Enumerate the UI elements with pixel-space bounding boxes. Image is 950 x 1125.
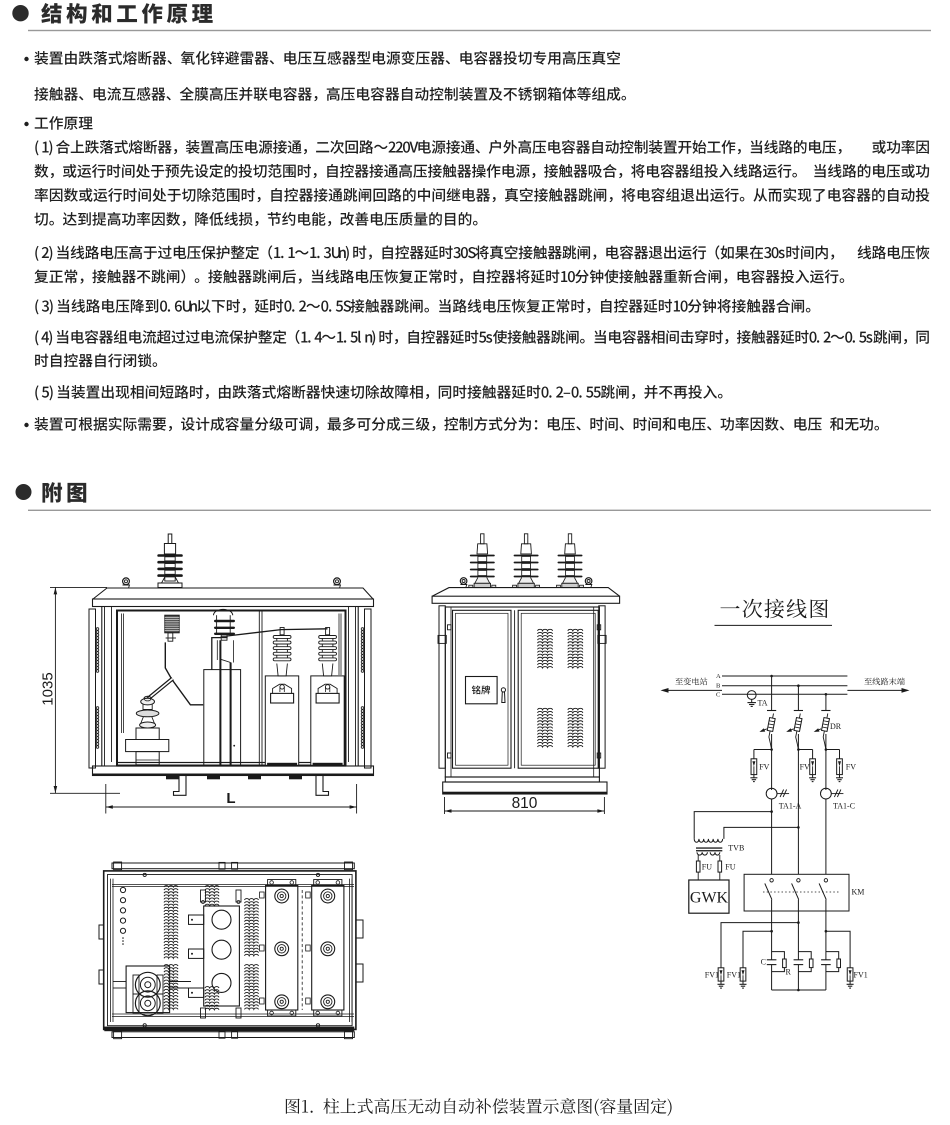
svg-text:1035: 1035 — [40, 672, 57, 705]
svg-text:FU: FU — [725, 863, 735, 872]
svg-text:FV: FV — [759, 763, 769, 772]
svg-text:FU: FU — [702, 863, 712, 872]
svg-text:R: R — [786, 968, 792, 977]
svg-text:TVB: TVB — [728, 844, 744, 853]
svg-text:C: C — [761, 958, 766, 967]
svg-text:A: A — [716, 673, 721, 680]
svg-text:FV1: FV1 — [727, 971, 741, 980]
svg-text:C: C — [716, 691, 720, 698]
svg-text:GWK: GWK — [690, 890, 729, 907]
svg-text:B: B — [716, 683, 721, 690]
svg-text:FV: FV — [846, 763, 856, 772]
svg-text:FV1: FV1 — [705, 971, 719, 980]
svg-text:TA1-C: TA1-C — [833, 802, 855, 811]
svg-text:DR: DR — [830, 722, 842, 731]
svg-text:L: L — [226, 790, 235, 807]
svg-text:TA1-A: TA1-A — [779, 802, 802, 811]
svg-text:FV: FV — [800, 763, 810, 772]
svg-text:TA: TA — [758, 699, 768, 708]
svg-text:FV1: FV1 — [854, 971, 868, 980]
svg-text:KM: KM — [852, 888, 865, 897]
svg-text:810: 810 — [512, 795, 538, 812]
